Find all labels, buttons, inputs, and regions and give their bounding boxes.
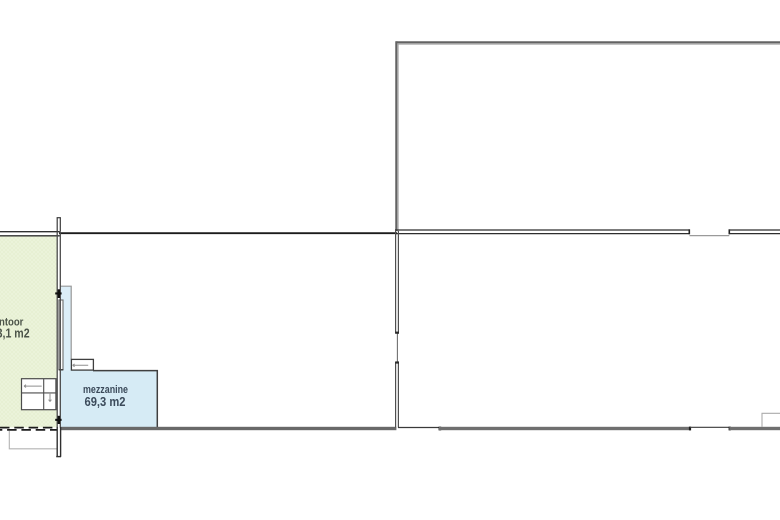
- svg-text:3,1 m2: 3,1 m2: [0, 327, 30, 341]
- svg-text:69,3 m2: 69,3 m2: [85, 394, 126, 409]
